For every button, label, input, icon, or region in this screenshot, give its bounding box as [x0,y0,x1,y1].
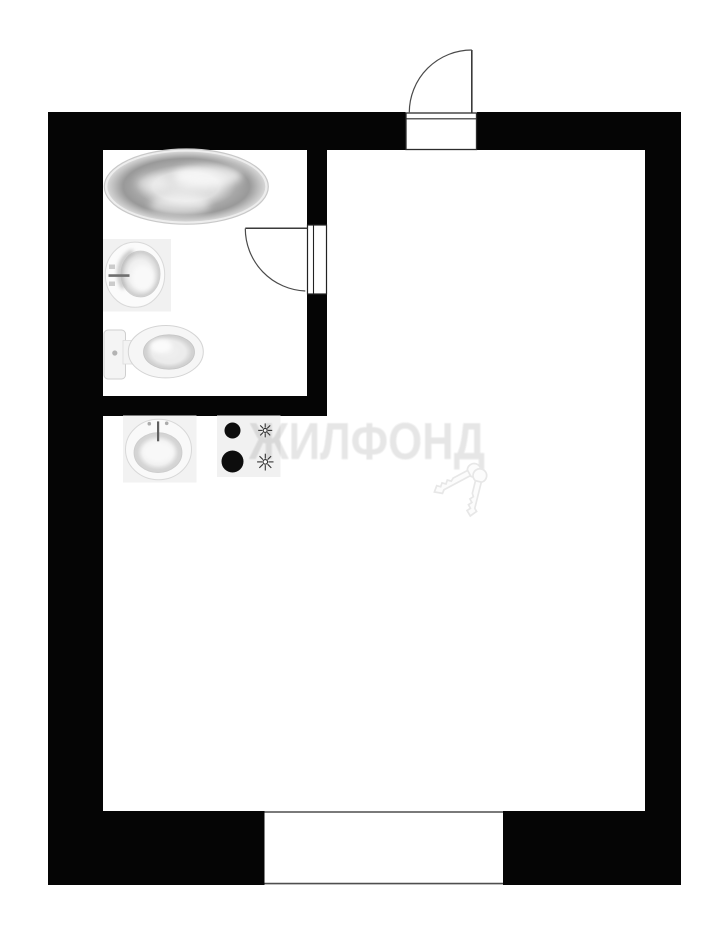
svg-text:ЖИЛФОНД: ЖИЛФОНД [248,413,485,471]
